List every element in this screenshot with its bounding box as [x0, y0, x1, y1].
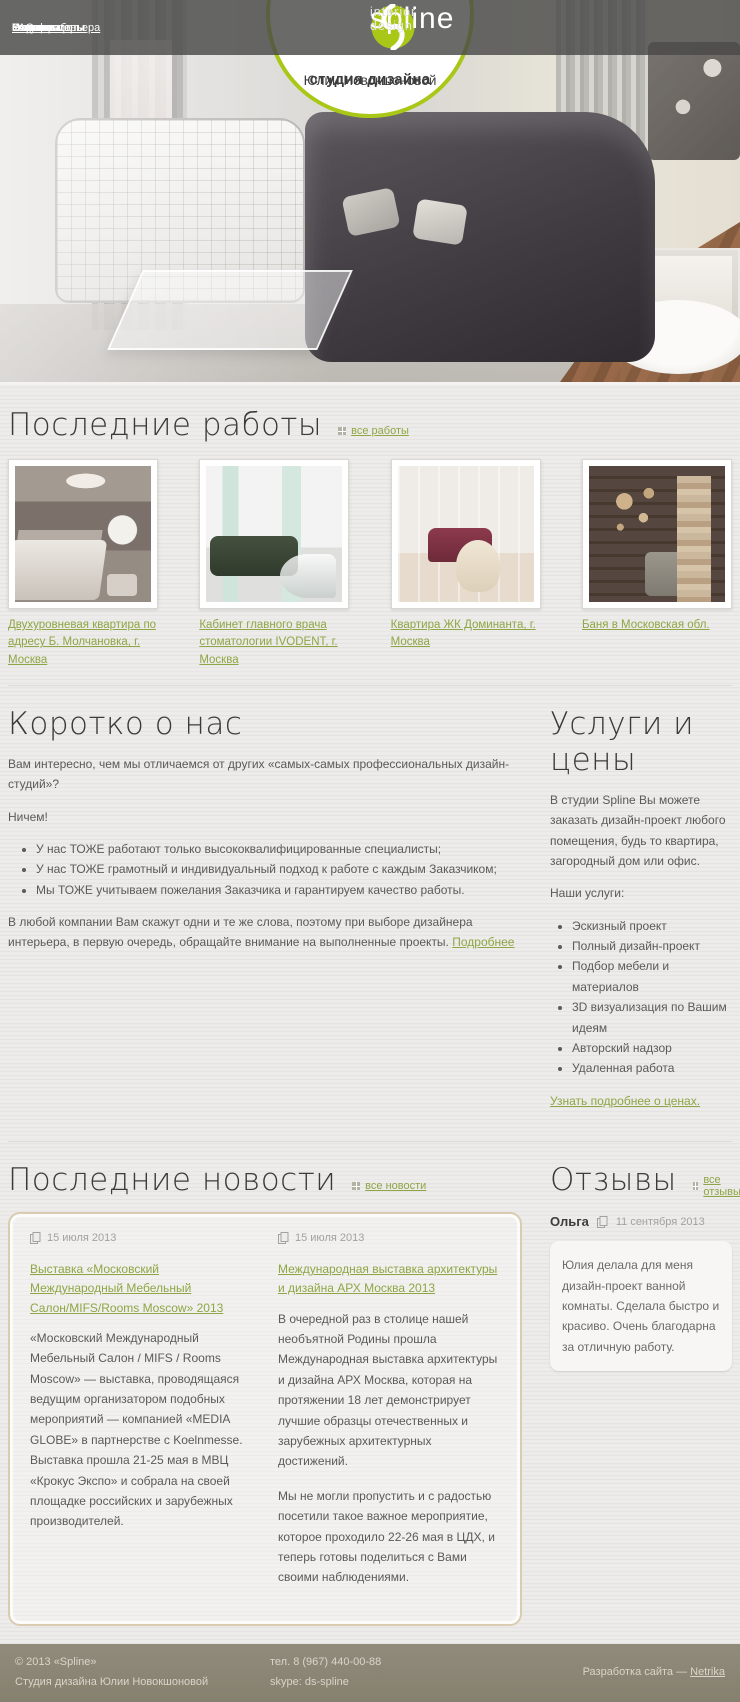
- grid-icon: [693, 1182, 699, 1190]
- about-more-link[interactable]: Подробнее: [452, 935, 514, 949]
- services-list: Эскизный проект Полный дизайн-проект Под…: [572, 916, 732, 1079]
- footer-studio: Студия дизайна Юлии Новокшоновой: [15, 1673, 270, 1693]
- footer-skype: skype: ds-spline: [270, 1673, 570, 1693]
- review-header: Ольга 11 сентября 2013: [550, 1214, 732, 1229]
- hero-pillow: [412, 198, 468, 245]
- brand-tagline: interior design: [370, 5, 416, 33]
- work-caption-link[interactable]: Двухуровневая квартира по адресу Б. Молч…: [8, 617, 158, 669]
- news-item-title[interactable]: Выставка «Московский Международный Мебел…: [30, 1260, 252, 1318]
- all-works-link[interactable]: все работы: [338, 425, 409, 437]
- work-thumb-link[interactable]: [8, 459, 158, 609]
- work-card: Кабинет главного врача стоматологии IVOD…: [199, 459, 349, 669]
- work-card: Квартира ЖК Доминанта, г. Москва: [391, 459, 541, 669]
- thumb-frame: [199, 459, 349, 609]
- news-date: 15 июля 2013: [47, 1232, 116, 1244]
- review-author: Ольга: [550, 1214, 589, 1229]
- developer-link[interactable]: Netrika: [690, 1666, 725, 1678]
- about-intro: Вам интересно, чем мы отличаемся от друг…: [8, 754, 522, 795]
- service-item: Полный дизайн-проект: [572, 936, 732, 956]
- review-text-bubble: Юлия делала для меня дизайн-проект ванно…: [550, 1241, 732, 1371]
- work-caption-link[interactable]: Баня в Московская обл.: [582, 617, 732, 634]
- thumb-frame: [8, 459, 158, 609]
- prices-link-wrap: Узнать подробнее о ценах.: [550, 1091, 732, 1111]
- nav-item-contacts[interactable]: Контакты: [12, 22, 60, 34]
- news-item-title[interactable]: Международная выставка архитектуры и диз…: [278, 1260, 500, 1298]
- grid-icon: [338, 427, 346, 435]
- about-bullets: У нас ТОЖЕ работают только высококвалифи…: [36, 839, 522, 900]
- news-column: Последние новости все новости 15 июля 20…: [8, 1162, 522, 1625]
- work-card: Двухуровневая квартира по адресу Б. Молч…: [8, 459, 158, 669]
- footer-phone: тел. 8 (967) 440-00-88: [270, 1653, 570, 1673]
- reviews-title: Отзывы: [550, 1162, 677, 1198]
- review-date: 11 сентября 2013: [616, 1216, 705, 1228]
- news-panel: 15 июля 2013 Выставка «Московский Междун…: [8, 1212, 522, 1625]
- about-title: Коротко о нас: [8, 706, 522, 742]
- reviews-heading-row: Отзывы все отзывы: [550, 1162, 732, 1198]
- apartment-thumb: [398, 466, 534, 602]
- all-news-label: все новости: [365, 1180, 426, 1192]
- main-content: Последние работы все работы Двухуровнева…: [0, 385, 740, 1644]
- sauna-thumb: [589, 466, 725, 602]
- about-bullet: У нас ТОЖЕ работают только высококвалифи…: [36, 839, 522, 859]
- service-item: Удаленная работа: [572, 1058, 732, 1078]
- work-thumb-link[interactable]: [582, 459, 732, 609]
- about-services-section: Коротко о нас Вам интересно, чем мы отли…: [8, 685, 732, 1141]
- news-reviews-section: Последние новости все новости 15 июля 20…: [8, 1141, 732, 1643]
- hero-wall-clock-collage: [648, 42, 740, 160]
- works-heading-row: Последние работы все работы: [8, 407, 732, 443]
- grid-icon: [352, 1182, 360, 1190]
- work-thumb-link[interactable]: [391, 459, 541, 609]
- work-caption-link[interactable]: Кабинет главного врача стоматологии IVOD…: [199, 617, 349, 669]
- footer-dev-prefix: Разработка сайта —: [583, 1666, 691, 1678]
- office-thumb: [206, 466, 342, 602]
- all-news-link[interactable]: все новости: [352, 1180, 426, 1192]
- all-works-label: все работы: [351, 425, 409, 437]
- page-icon: [30, 1232, 41, 1244]
- hero-pillow: [341, 187, 400, 237]
- work-card: Баня в Московская обл.: [582, 459, 732, 669]
- thumb-frame: [391, 459, 541, 609]
- about-nothing: Ничем!: [8, 807, 522, 827]
- latest-works-section: Последние работы все работы Двухуровнева…: [8, 385, 732, 685]
- bedroom-thumb: [15, 466, 151, 602]
- news-paragraph: В очередной раз в столице нашей необъятн…: [278, 1309, 500, 1472]
- services-column: Услуги и цены В студии Spline Вы можете …: [550, 706, 732, 1123]
- prices-link[interactable]: Узнать подробнее о ценах.: [550, 1094, 700, 1108]
- thumb-frame: [582, 459, 732, 609]
- news-title: Последние новости: [8, 1162, 336, 1198]
- page: студия дизайна Юлии Новокшоновой О нас У…: [0, 0, 740, 1702]
- about-bullet: Мы ТОЖЕ учитываем пожелания Заказчика и …: [36, 880, 522, 900]
- service-item: 3D визуализация по Вашим идеям: [572, 997, 732, 1038]
- all-reviews-label: все отзывы: [703, 1174, 740, 1198]
- news-item: 15 июля 2013 Выставка «Московский Междун…: [30, 1232, 252, 1601]
- page-icon: [278, 1232, 289, 1244]
- services-intro: В студии Spline Вы можете заказать дизай…: [550, 790, 732, 872]
- works-title: Последние работы: [8, 407, 322, 443]
- about-outro: В любой компании Вам скажут одни и те же…: [8, 912, 522, 953]
- work-caption-link[interactable]: Квартира ЖК Доминанта, г. Москва: [391, 617, 541, 652]
- reviews-column: Отзывы все отзывы Ольга 11 сентября 2013…: [550, 1162, 732, 1625]
- news-heading-row: Последние новости все новости: [8, 1162, 522, 1198]
- footer-contacts-block: тел. 8 (967) 440-00-88 skype: ds-spline: [270, 1653, 570, 1693]
- news-paragraph: «Московский Международный Мебельный Сало…: [30, 1328, 252, 1532]
- services-list-label: Наши услуги:: [550, 883, 732, 903]
- news-date: 15 июля 2013: [295, 1232, 364, 1244]
- studio-owner: Юлии Новокшоновой: [304, 73, 437, 88]
- footer-copyright-block: © 2013 «Spline» Студия дизайна Юлии Ново…: [15, 1653, 270, 1693]
- news-date-row: 15 июля 2013: [30, 1232, 252, 1244]
- service-item: Авторский надзор: [572, 1038, 732, 1058]
- works-cards: Двухуровневая квартира по адресу Б. Молч…: [8, 459, 732, 669]
- news-paragraph: Мы не могли пропустить и с радостью посе…: [278, 1486, 500, 1588]
- about-column: Коротко о нас Вам интересно, чем мы отли…: [8, 706, 522, 1123]
- about-outro-text: В любой компании Вам скажут одни и те же…: [8, 915, 473, 949]
- about-bullet: У нас ТОЖЕ грамотный и индивидуальный по…: [36, 859, 522, 879]
- service-item: Эскизный проект: [572, 916, 732, 936]
- footer: © 2013 «Spline» Студия дизайна Юлии Ново…: [0, 1644, 740, 1702]
- footer-developer-block: Разработка сайта — Netrika: [570, 1663, 725, 1683]
- services-title: Услуги и цены: [550, 706, 732, 778]
- footer-copyright: © 2013 «Spline»: [15, 1653, 270, 1673]
- hero-banner: студия дизайна Юлии Новокшоновой О нас У…: [0, 0, 740, 385]
- work-thumb-link[interactable]: [199, 459, 349, 609]
- hero-leather-sofa: [305, 112, 655, 362]
- page-icon: [597, 1216, 608, 1228]
- service-item: Подбор мебели и материалов: [572, 956, 732, 997]
- news-item: 15 июля 2013 Международная выставка архи…: [278, 1232, 500, 1601]
- news-date-row: 15 июля 2013: [278, 1232, 500, 1244]
- all-reviews-link[interactable]: все отзывы: [693, 1174, 740, 1198]
